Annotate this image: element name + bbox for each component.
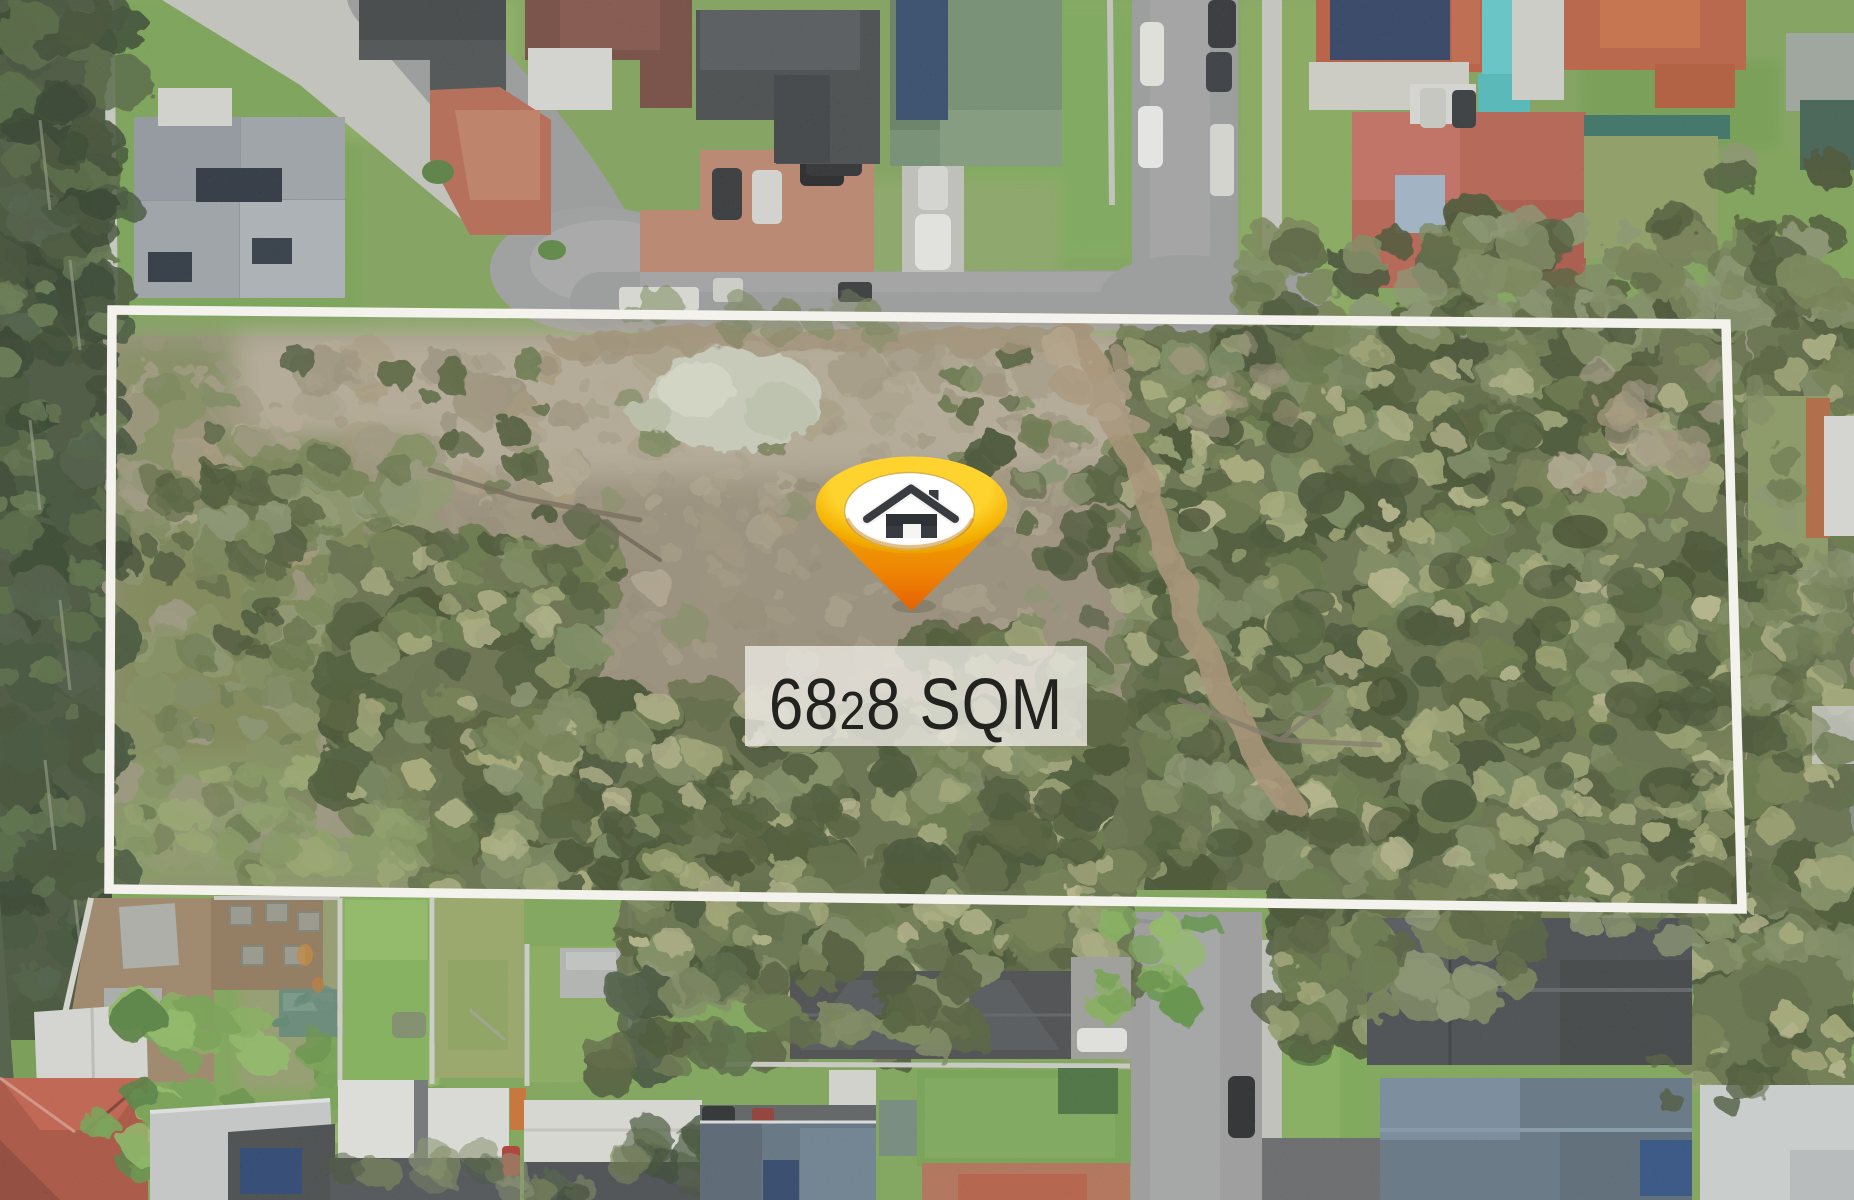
svg-text:6828 SQM: 6828 SQM <box>769 665 1063 745</box>
